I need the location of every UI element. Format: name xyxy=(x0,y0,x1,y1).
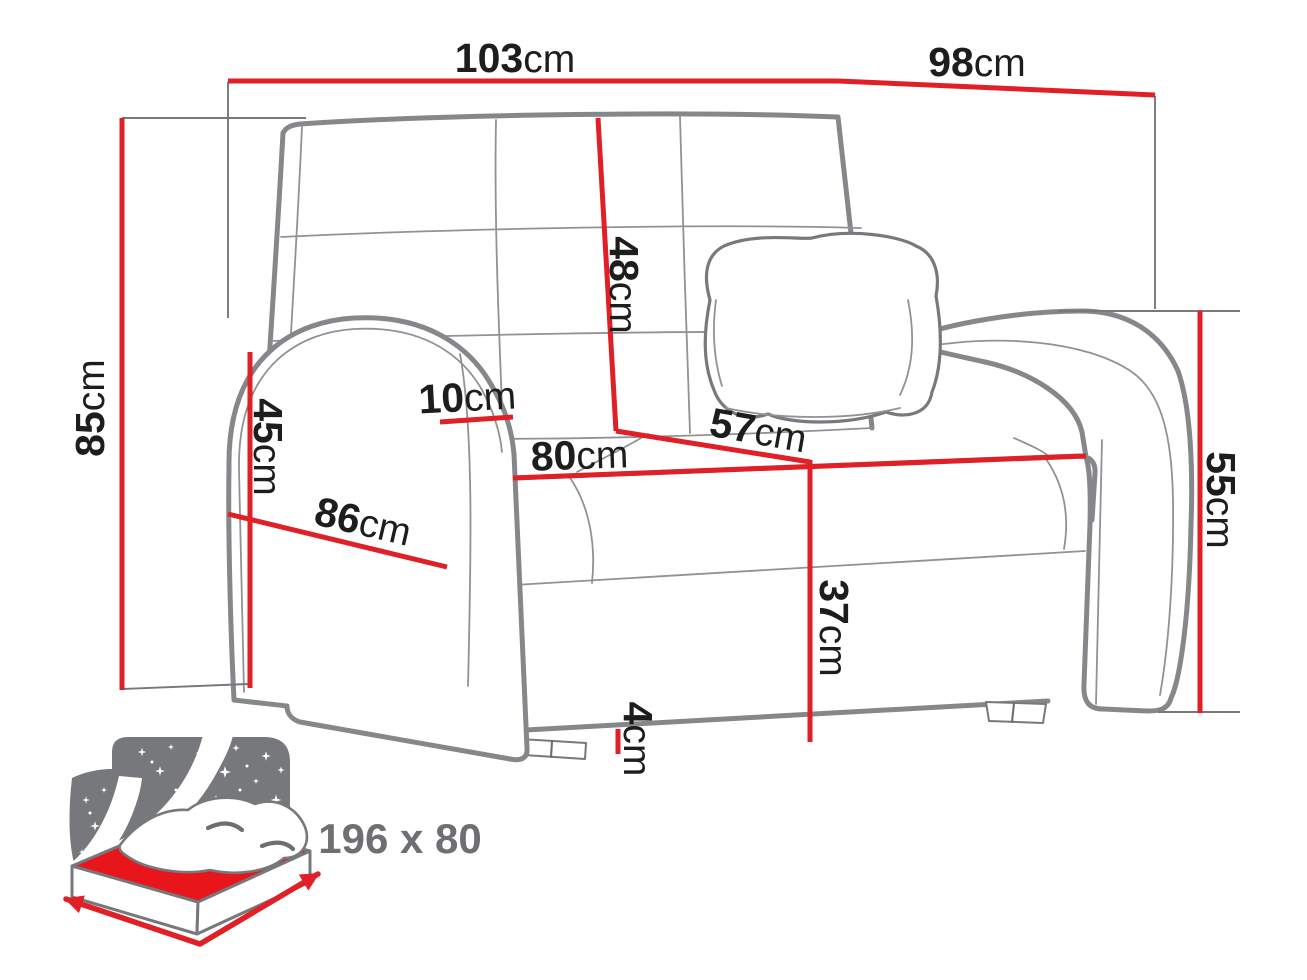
dimension-diagram-svg: 103cm 98cm 85cm 48cm 10cm 45cm 80cm 57cm… xyxy=(0,0,1307,980)
right-foot xyxy=(986,702,1046,723)
dim-label-overall-height: 85cm xyxy=(67,359,113,457)
dim-label-overall-width: 103cm xyxy=(455,35,575,81)
dim-label-seat-height: 37cm xyxy=(811,579,857,677)
dim-label-armrest-outer-height: 55cm xyxy=(1198,451,1244,549)
right-armrest xyxy=(903,311,1192,711)
sofa-bed-sleeping-size-icon xyxy=(62,735,318,944)
dim-label-overall-depth: 98cm xyxy=(928,39,1026,85)
dim-label-armrest-front-height: 45cm xyxy=(245,398,291,496)
diagram-canvas: 103cm 98cm 85cm 48cm 10cm 45cm 80cm 57cm… xyxy=(0,0,1307,980)
dim-label-seat-width: 80cm xyxy=(530,430,629,479)
dim-label-leg-height: 4cm xyxy=(615,702,661,777)
dim-label-armrest-width: 10cm xyxy=(417,371,517,422)
dim-label-backrest-height: 48cm xyxy=(601,236,647,334)
sleeping-size-label: 196 x 80 xyxy=(318,815,482,862)
pillow xyxy=(705,233,940,422)
left-foot xyxy=(520,739,586,759)
